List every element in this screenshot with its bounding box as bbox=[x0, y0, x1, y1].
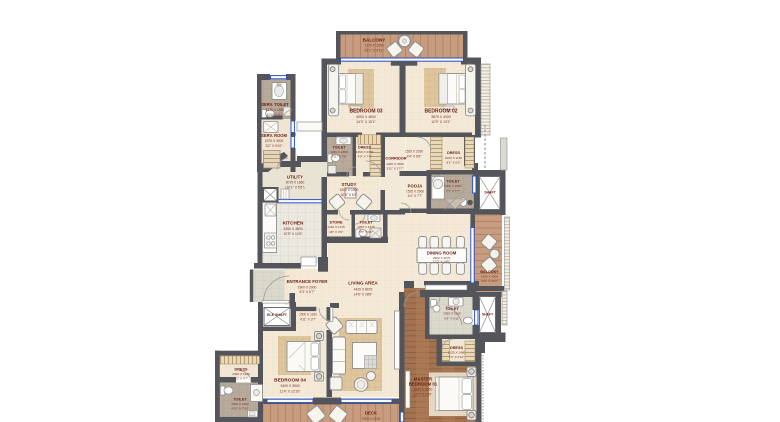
svg-text:ELE SHAFT: ELE SHAFT bbox=[267, 313, 288, 317]
svg-text:8'1" X 6'5": 8'1" X 6'5" bbox=[446, 161, 460, 165]
svg-text:BALCONY: BALCONY bbox=[363, 38, 386, 43]
svg-text:6'3" X 6'7": 6'3" X 6'7" bbox=[300, 290, 316, 294]
svg-text:SERV. ROOM: SERV. ROOM bbox=[261, 133, 287, 138]
svg-text:BEDROOM 04: BEDROOM 04 bbox=[274, 378, 306, 384]
svg-text:BEDROOM 03: BEDROOM 03 bbox=[349, 109, 382, 115]
svg-text:12'7" X 13'0": 12'7" X 13'0" bbox=[414, 393, 433, 397]
svg-text:2125 X 1480: 2125 X 1480 bbox=[448, 351, 466, 355]
svg-text:STUDY: STUDY bbox=[342, 182, 357, 187]
svg-text:TOILET: TOILET bbox=[446, 180, 460, 184]
svg-text:4425 X 8675: 4425 X 8675 bbox=[354, 287, 373, 291]
svg-text:1500 X 4300: 1500 X 4300 bbox=[481, 275, 498, 279]
svg-text:3350 X 3800: 3350 X 3800 bbox=[283, 227, 302, 231]
svg-text:KITCHEN: KITCHEN bbox=[283, 221, 304, 226]
svg-text:12'9" X 13'1": 12'9" X 13'1" bbox=[431, 120, 452, 124]
svg-text:1200 X 3300: 1200 X 3300 bbox=[386, 162, 404, 166]
svg-text:2300 X 2300: 2300 X 2300 bbox=[444, 184, 462, 188]
svg-text:SHAFT: SHAFT bbox=[484, 191, 496, 195]
svg-text:STORE: STORE bbox=[329, 221, 342, 225]
svg-text:12'0" X 14'0": 12'0" X 14'0" bbox=[433, 260, 450, 264]
svg-text:1525 X 2030: 1525 X 2030 bbox=[405, 150, 423, 154]
svg-text:2050 X 2100: 2050 X 2100 bbox=[443, 312, 461, 316]
svg-text:1450 X 2350: 1450 X 2350 bbox=[356, 150, 374, 154]
svg-text:3'11" X 17'7": 3'11" X 17'7" bbox=[386, 167, 403, 171]
svg-text:4050 X 4600: 4050 X 4600 bbox=[356, 115, 376, 119]
svg-text:11'4" X 12'10": 11'4" X 12'10" bbox=[280, 389, 302, 393]
svg-text:TOILET: TOILET bbox=[445, 306, 459, 311]
svg-text:23'1" X 4'11": 23'1" X 4'11" bbox=[365, 48, 385, 52]
svg-text:BEDROOM 01: BEDROOM 01 bbox=[409, 382, 438, 387]
svg-text:DRESS: DRESS bbox=[447, 151, 461, 155]
svg-text:4'11" X 3'7": 4'11" X 3'7" bbox=[300, 317, 316, 321]
svg-text:2400 X 1400: 2400 X 1400 bbox=[232, 372, 250, 376]
svg-text:10'9" X 6'3": 10'9" X 6'3" bbox=[341, 193, 359, 197]
svg-text:4'4" X 7'7": 4'4" X 7'7" bbox=[408, 194, 422, 198]
svg-text:4'11" X 7'10": 4'11" X 7'10" bbox=[231, 407, 248, 411]
svg-text:1525 X 2000: 1525 X 2000 bbox=[406, 190, 424, 194]
svg-text:TOILET: TOILET bbox=[332, 146, 346, 150]
svg-text:14'3" X 15'1": 14'3" X 15'1" bbox=[356, 120, 377, 124]
svg-text:2400 X 1150: 2400 X 1150 bbox=[445, 156, 463, 160]
svg-text:POOJA: POOJA bbox=[408, 184, 423, 189]
svg-text:3875 X 4000: 3875 X 4000 bbox=[431, 115, 451, 119]
svg-text:3'5" X 4'6": 3'5" X 4'6" bbox=[359, 230, 373, 234]
svg-text:SERV. TOILET: SERV. TOILET bbox=[261, 102, 289, 107]
svg-text:DECK: DECK bbox=[365, 411, 378, 416]
svg-text:BEDROOM 02: BEDROOM 02 bbox=[424, 109, 457, 115]
svg-text:4'4" X 6'8": 4'4" X 6'8" bbox=[407, 154, 421, 158]
svg-text:DRESS: DRESS bbox=[234, 367, 248, 371]
svg-text:3200 X 1900: 3200 X 1900 bbox=[340, 188, 359, 192]
svg-text:DRESS: DRESS bbox=[450, 346, 464, 350]
svg-text:1900 X 2000: 1900 X 2000 bbox=[298, 285, 317, 289]
svg-text:SHAFT: SHAFT bbox=[482, 313, 494, 317]
svg-text:ENTRANCE FOYER: ENTRANCE FOYER bbox=[287, 279, 329, 284]
svg-text:1175 X 1830: 1175 X 1830 bbox=[266, 108, 285, 112]
svg-text:DRESS: DRESS bbox=[358, 146, 372, 150]
svg-text:LIVING AREA: LIVING AREA bbox=[348, 281, 378, 286]
svg-text:1575 X 3000: 1575 X 3000 bbox=[265, 139, 284, 143]
svg-text:5'2" X 9'10": 5'2" X 9'10" bbox=[266, 144, 284, 148]
svg-text:(10'1" X 5'5"): (10'1" X 5'5") bbox=[286, 185, 305, 189]
svg-text:1500 X 2400: 1500 X 2400 bbox=[231, 402, 249, 406]
svg-text:1060 X 2350: 1060 X 2350 bbox=[330, 150, 348, 154]
svg-text:1050 X 1375: 1050 X 1375 bbox=[357, 225, 375, 229]
svg-text:3'11" X 7'9": 3'11" X 7'9" bbox=[331, 154, 347, 158]
svg-text:4'8" X 4'6": 4'8" X 4'6" bbox=[329, 230, 343, 234]
svg-text:7900 X 2100: 7900 X 2100 bbox=[362, 417, 381, 421]
svg-text:14'6" X 28'6": 14'6" X 28'6" bbox=[354, 293, 373, 297]
svg-text:10'9" X 12'6": 10'9" X 12'6" bbox=[283, 232, 303, 236]
svg-text:DINING ROOM: DINING ROOM bbox=[427, 250, 457, 255]
svg-text:7275 X 1500: 7275 X 1500 bbox=[364, 44, 383, 48]
svg-text:3075 X 1650: 3075 X 1650 bbox=[286, 181, 305, 185]
svg-text:BALCONY: BALCONY bbox=[480, 270, 499, 274]
svg-text:3835 X 3950: 3835 X 3950 bbox=[414, 388, 433, 392]
svg-text:UTILITY: UTILITY bbox=[287, 175, 303, 180]
svg-text:7'7" X 7'7": 7'7" X 7'7" bbox=[446, 189, 460, 193]
svg-text:6'9" X 6'11": 6'9" X 6'11" bbox=[444, 316, 460, 320]
svg-text:1425 X 1375: 1425 X 1375 bbox=[327, 225, 345, 229]
svg-text:3400 X 3900: 3400 X 3900 bbox=[280, 384, 299, 388]
svg-text:TOILET: TOILET bbox=[233, 397, 247, 401]
svg-text:4'9" X 7'9": 4'9" X 7'9" bbox=[357, 154, 371, 158]
svg-text:TOILET: TOILET bbox=[359, 221, 373, 225]
svg-text:1500 X 1100: 1500 X 1100 bbox=[299, 313, 317, 317]
svg-text:3'10" X 6'1": 3'10" X 6'1" bbox=[267, 113, 285, 117]
svg-text:7'0" X 4'10": 7'0" X 4'10" bbox=[449, 355, 465, 359]
svg-text:4'11" X 14'1": 4'11" X 14'1" bbox=[481, 279, 498, 283]
svg-text:CORRIDOR: CORRIDOR bbox=[385, 156, 406, 161]
svg-text:7'1" X 4'7": 7'1" X 4'7" bbox=[234, 377, 248, 381]
